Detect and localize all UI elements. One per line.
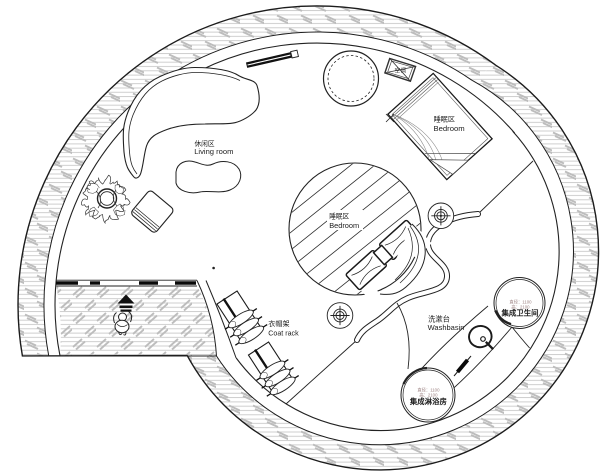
- svg-text:Washbasin: Washbasin: [428, 323, 465, 332]
- svg-text:Bedroom: Bedroom: [329, 221, 359, 230]
- svg-text:直径：1100: 直径：1100: [509, 298, 532, 304]
- svg-text:Bedroom: Bedroom: [434, 124, 465, 133]
- svg-text:Living room: Living room: [194, 147, 233, 156]
- svg-text:Coat rack: Coat rack: [268, 329, 299, 337]
- svg-text:集成淋浴房: 集成淋浴房: [409, 397, 447, 406]
- svg-text:睡眠区: 睡眠区: [329, 212, 349, 220]
- svg-text:直径：1100: 直径：1100: [417, 386, 440, 392]
- svg-text:空调: 空调: [394, 66, 406, 74]
- svg-text:集成卫生间: 集成卫生间: [501, 309, 539, 318]
- svg-text:睡眠区: 睡眠区: [434, 114, 455, 123]
- svg-text:衣帽架: 衣帽架: [268, 319, 289, 328]
